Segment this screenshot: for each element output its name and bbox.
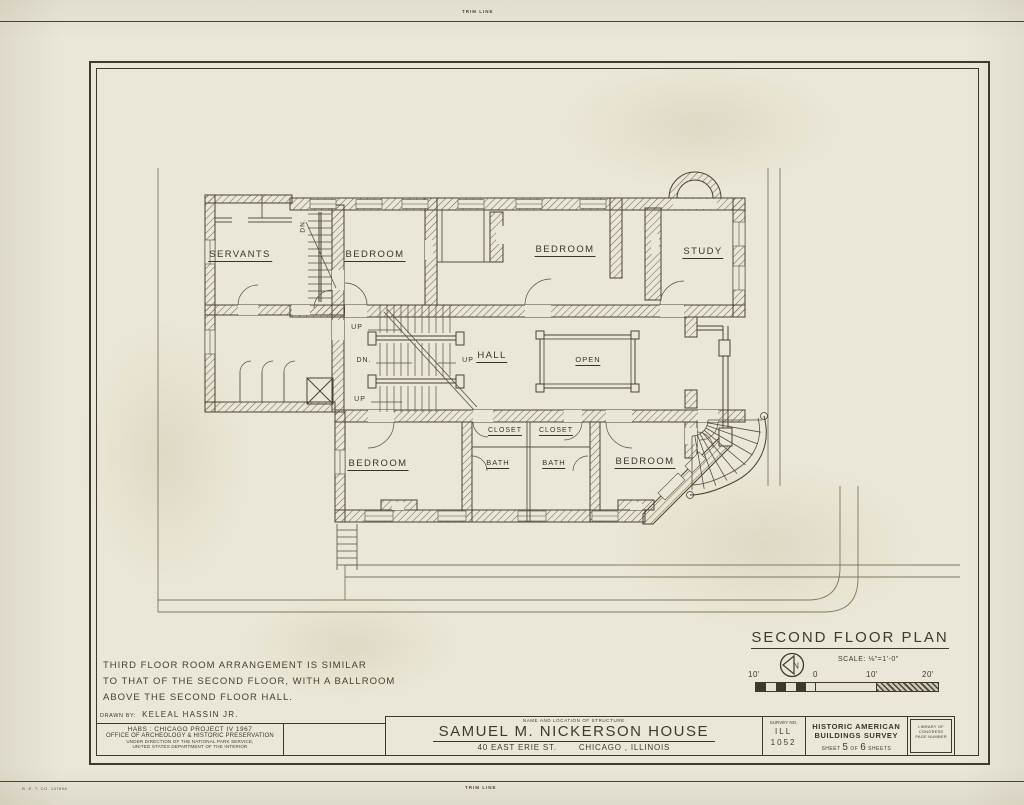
general-note: THIRD FLOOR ROOM ARRANGEMENT IS SIMILAR … — [103, 658, 395, 706]
sheet-word: SHEET — [821, 746, 840, 752]
room-label-bedroom-se: BEDROOM — [615, 456, 676, 469]
project-box-divider — [283, 724, 284, 755]
scale-tick-10-right: 10' — [866, 670, 878, 679]
scale-bar-segment-right — [876, 683, 938, 691]
floor-plan: SERVANTS BEDROOM BEDROOM STUDY HALL OPEN… — [140, 150, 970, 640]
exterior-walls — [205, 172, 745, 524]
room-label-closet-left: CLOSET — [488, 427, 522, 436]
habs-sheet: TRIM LINE TRIM LINE R. E. T. CO. 147898 — [0, 0, 1024, 805]
agency-block: HABS : CHICAGO PROJECT IV 1967 OFFICE OF… — [97, 724, 283, 755]
room-label-closet-right: CLOSET — [539, 427, 573, 436]
project-box: HABS : CHICAGO PROJECT IV 1967 OFFICE OF… — [96, 723, 386, 756]
sheet-number: 5 — [842, 742, 848, 753]
agency-line-4: UNITED STATES DEPARTMENT OF THE INTERIOR — [97, 744, 283, 749]
structure-name: SAMUEL M. NICKERSON HOUSE — [433, 723, 715, 742]
room-label-bath-right: BATH — [542, 458, 565, 469]
sheet-total: 6 — [860, 742, 866, 753]
library-cell: LIBRARY OF CONGRESS PAGE NUMBER — [907, 717, 954, 755]
survey-number-caption: SURVEY NO. — [763, 720, 805, 725]
north-letter: N — [793, 662, 799, 671]
library-line-2: PAGE NUMBER — [911, 734, 951, 739]
title-block: NAME AND LOCATION OF STRUCTURE SAMUEL M.… — [385, 716, 955, 756]
stair-label-up-bottom: UP — [354, 396, 366, 403]
trim-line-label-top: TRIM LINE — [462, 9, 494, 14]
room-label-open: OPEN — [575, 355, 600, 366]
printer-code: R. E. T. CO. 147898 — [22, 786, 67, 791]
north-arrow: N — [776, 649, 808, 686]
drawn-by-label: DRAWN BY: — [100, 713, 136, 719]
library-line-1: LIBRARY OF CONGRESS — [911, 724, 951, 734]
trim-line-bottom — [0, 781, 1024, 782]
note-line-2: TO THAT OF THE SECOND FLOOR, WITH A BALL… — [103, 674, 395, 690]
structure-city: CHICAGO , ILLINOIS — [579, 743, 670, 752]
scale-bar-segment-left — [756, 683, 815, 691]
drawn-by-name: KELEAL HASSIN JR. — [142, 710, 239, 719]
main-stair — [368, 305, 477, 412]
room-label-servants: SERVANTS — [208, 249, 272, 262]
habs-line-1: HISTORIC AMERICAN — [806, 722, 908, 731]
drawn-by: DRAWN BY:KELEAL HASSIN JR. — [100, 710, 239, 719]
library-cell-inner: LIBRARY OF CONGRESS PAGE NUMBER — [910, 719, 952, 753]
drawing-title-text: SECOND FLOOR PLAN — [751, 629, 948, 649]
agency-line-1: HABS : CHICAGO PROJECT IV 1967 — [97, 726, 283, 733]
scale-tick-20: 20' — [922, 670, 934, 679]
structure-name-cell: NAME AND LOCATION OF STRUCTURE SAMUEL M.… — [386, 717, 762, 755]
habs-cell: HISTORIC AMERICAN BUILDINGS SURVEY SHEET… — [805, 717, 908, 755]
note-line-3: ABOVE THE SECOND FLOOR HALL. — [103, 690, 395, 706]
survey-state: ILL — [763, 727, 805, 736]
scale-note: SCALE: ⅛"=1'-0" — [838, 656, 899, 663]
room-label-bath-left: BATH — [486, 458, 509, 469]
sheets-word: SHEETS — [868, 746, 891, 752]
drawing-title: SECOND FLOOR PLAN — [750, 629, 950, 649]
shaft — [307, 378, 333, 404]
floor-plan-drawing — [140, 150, 970, 640]
note-line-1: THIRD FLOOR ROOM ARRANGEMENT IS SIMILAR — [103, 658, 395, 674]
stair-label-dn-main: DN. — [356, 357, 371, 364]
stair-label-dn-service: DN. — [300, 218, 307, 232]
graphic-scale-bar — [755, 682, 939, 692]
of-word: OF — [850, 746, 858, 752]
sw-exterior-steps — [337, 524, 357, 570]
stair-label-up-top: UP — [351, 324, 363, 331]
survey-number: 1052 — [763, 738, 805, 747]
scale-bar-segment-middle — [815, 683, 875, 691]
habs-line-2: BUILDINGS SURVEY — [806, 731, 908, 740]
fan-stair — [687, 413, 768, 499]
sheet-count: SHEET 5 OF 6 SHEETS — [806, 742, 908, 753]
stair-label-up-mid: UP — [462, 357, 474, 364]
room-label-bedroom-n: BEDROOM — [535, 244, 596, 257]
structure-address: 40 EAST ERIE ST. — [477, 743, 556, 752]
window-openings — [205, 199, 745, 521]
room-label-bedroom-nw: BEDROOM — [345, 249, 406, 262]
room-label-study: STUDY — [682, 246, 723, 259]
scale-tick-10-left: 10' — [748, 670, 760, 679]
site-property-lines — [158, 168, 960, 612]
room-label-hall: HALL — [476, 350, 507, 363]
trim-line-label-bottom: TRIM LINE — [465, 785, 497, 790]
trim-line-top — [0, 21, 1024, 22]
scale-tick-0: 0 — [813, 670, 818, 679]
survey-number-cell: SURVEY NO. ILL 1052 — [762, 717, 805, 755]
room-label-bedroom-sw: BEDROOM — [348, 458, 409, 471]
